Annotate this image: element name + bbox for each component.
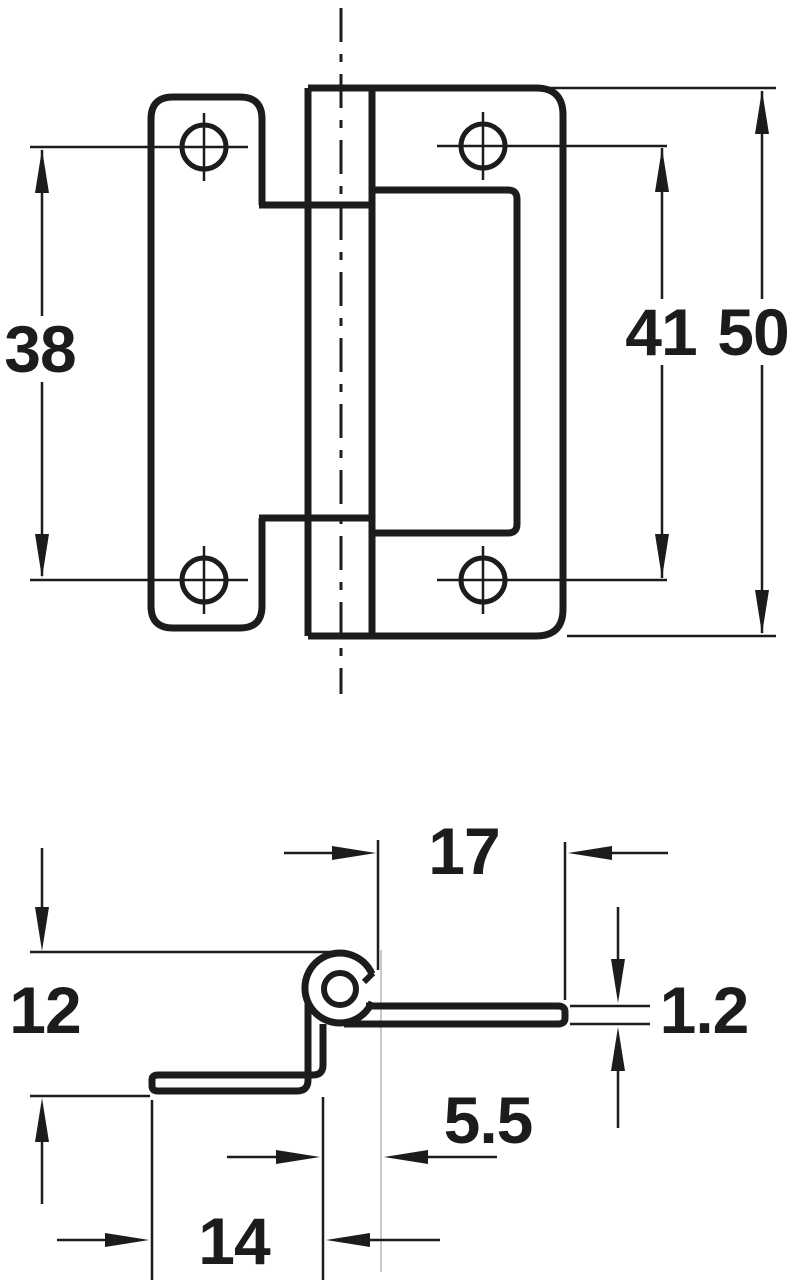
hinge-drawing-svg bbox=[0, 0, 810, 1280]
dim-14-arrow-right bbox=[105, 1233, 149, 1247]
technical-drawing-canvas: 38 41 50 17 12 1.2 5.5 14 bbox=[0, 0, 810, 1280]
dim-label-38: 38 bbox=[1, 316, 78, 382]
dim-41-arrow-up bbox=[655, 148, 669, 192]
dim-label-1-2: 1.2 bbox=[657, 977, 752, 1043]
dim-38-arrow-up bbox=[35, 149, 49, 193]
dim-label-12: 12 bbox=[6, 977, 83, 1043]
dim-label-14: 14 bbox=[195, 1208, 272, 1274]
profile-knuckle-curl-outer bbox=[305, 953, 372, 1023]
front-view-left-leaf-outline bbox=[151, 97, 262, 628]
dim-17-arrow-left bbox=[568, 846, 612, 860]
dim-1-2-arrow-down bbox=[611, 959, 625, 1003]
dim-label-17: 17 bbox=[425, 818, 502, 884]
dim-17-arrow-right bbox=[332, 846, 376, 860]
dim-38-arrow-down bbox=[35, 534, 49, 578]
profile-view-dimension-lines bbox=[30, 840, 668, 1280]
front-view-recess-cutout bbox=[372, 190, 517, 533]
dim-14-arrow-left bbox=[326, 1233, 370, 1247]
screw-hole-crosshairs bbox=[30, 112, 667, 614]
dim-5-5-arrow-right bbox=[276, 1150, 320, 1164]
dim-50-arrow-down bbox=[755, 590, 769, 634]
front-view-right-leaf-outline bbox=[308, 88, 563, 636]
dim-label-50: 50 bbox=[714, 299, 791, 365]
front-view-drawing bbox=[30, 8, 667, 694]
dim-label-5-5: 5.5 bbox=[441, 1087, 536, 1153]
dim-41-arrow-down bbox=[655, 534, 669, 578]
dim-label-41: 41 bbox=[622, 299, 699, 365]
profile-flat-leaf bbox=[344, 1006, 565, 1024]
profile-knuckle-sheet-end bbox=[364, 973, 373, 982]
dim-5-5-arrow-left bbox=[384, 1150, 428, 1164]
dim-50-arrow-up bbox=[755, 90, 769, 134]
profile-knuckle-pin-hole bbox=[324, 973, 356, 1005]
dim-12-arrow-up bbox=[35, 1098, 49, 1142]
dim-1-2-arrow-up bbox=[611, 1027, 625, 1071]
dim-12-arrow-down bbox=[35, 907, 49, 951]
profile-cranked-leaf bbox=[152, 1001, 323, 1091]
